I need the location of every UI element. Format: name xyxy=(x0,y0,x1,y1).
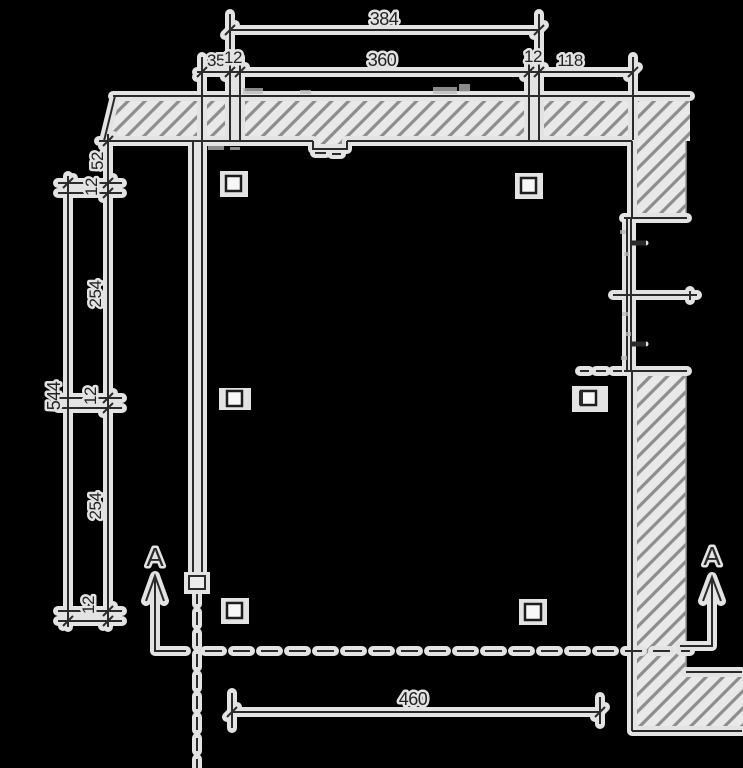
dim-label-52: 52 xyxy=(88,152,107,170)
floor-plan-svg: 384 35 12 360 12 118 52 12 254 12 254 12… xyxy=(0,0,743,768)
dim-label-544: 544 xyxy=(44,381,64,410)
dim-label-12-left-a: 12 xyxy=(82,178,101,196)
dim-label-360: 360 xyxy=(368,50,397,70)
column-marker xyxy=(572,386,608,412)
column-marker xyxy=(221,598,249,624)
section-label-right: A xyxy=(703,541,721,571)
dim-label-118: 118 xyxy=(557,51,583,70)
blueprint-canvas: 384 35 12 360 12 118 52 12 254 12 254 12… xyxy=(0,0,743,768)
column-marker xyxy=(220,171,248,197)
column-marker xyxy=(519,599,547,625)
dim-label-254-a: 254 xyxy=(86,281,105,308)
dim-label-12-left-c: 12 xyxy=(79,596,98,614)
right-wall-upper xyxy=(632,141,686,218)
dim-label-460: 460 xyxy=(399,689,428,709)
dim-label-12-left-b: 12 xyxy=(81,387,100,405)
dim-label-35: 35 xyxy=(207,51,225,70)
dim-label-12-top-left: 12 xyxy=(224,48,242,67)
dim-label-top-total: 384 xyxy=(370,9,399,29)
left-wall-end-cap xyxy=(184,572,210,594)
column-marker xyxy=(515,173,543,199)
dim-label-254-b: 254 xyxy=(86,493,105,520)
dim-label-12-top-right: 12 xyxy=(524,47,542,66)
section-label-left: A xyxy=(146,542,164,572)
column-marker xyxy=(219,388,251,410)
